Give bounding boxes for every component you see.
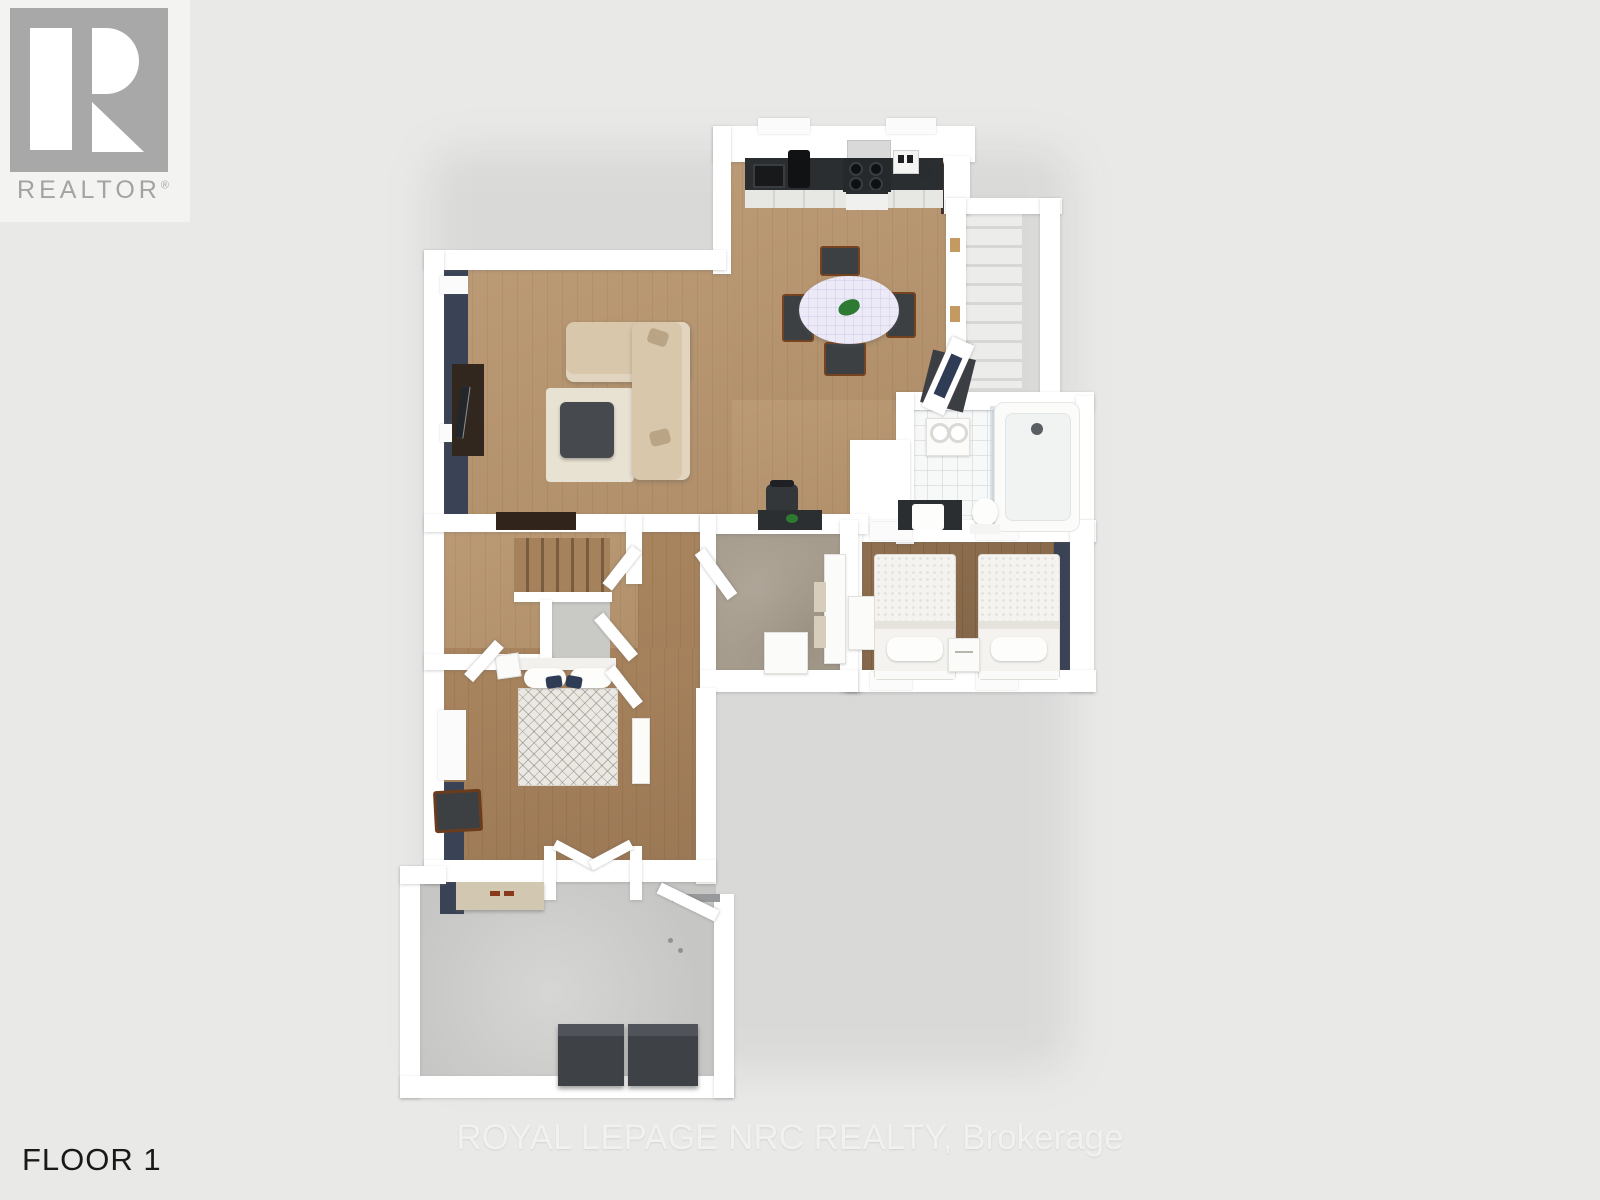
- toilet: [972, 498, 998, 526]
- master-right-wall: [696, 688, 716, 884]
- coffee-machine: [788, 150, 810, 188]
- bedroom-chair: [433, 789, 483, 833]
- master-bottom-wall: [424, 860, 716, 882]
- door-hinge-dot: [668, 938, 673, 943]
- tv-console: [452, 364, 484, 456]
- kettle: [919, 162, 934, 179]
- laundry-cabinet: [824, 554, 846, 664]
- washer: [764, 632, 808, 674]
- accent-pillow-left: [545, 675, 563, 689]
- garage-dresser: [456, 882, 544, 910]
- small-appliance: [893, 150, 919, 174]
- toilet-tank: [970, 524, 1000, 534]
- twin-bed-left: [874, 554, 956, 680]
- entry-shelf-2: [950, 306, 960, 322]
- laundry-shelf-2: [814, 616, 826, 648]
- towel-shelf: [926, 418, 970, 456]
- kitchen-cabinets: [745, 190, 943, 208]
- realtor-logo-card: REALTOR®: [0, 0, 190, 222]
- realtor-logo-text: REALTOR®: [2, 176, 184, 205]
- dining-chair-bottom: [824, 342, 866, 376]
- registered-symbol: ®: [161, 180, 169, 192]
- laundry-shelf: [814, 582, 826, 612]
- storage-box-right: [628, 1024, 698, 1086]
- master-nightstand: [494, 652, 521, 679]
- laundry-left-wall: [700, 514, 716, 692]
- floor-label: FLOOR 1: [22, 1142, 162, 1178]
- bathtub: [994, 402, 1080, 532]
- left-exterior-wall: [424, 250, 444, 884]
- closet-right-wall: [630, 846, 642, 900]
- garage-top-stub-wall: [400, 866, 446, 884]
- living-top-wall: [424, 250, 726, 270]
- storage-box-left: [558, 1024, 624, 1086]
- oven-front: [846, 190, 888, 210]
- entry-shelf: [950, 238, 960, 252]
- vanity-sink: [912, 504, 944, 530]
- stair-stringer-wall: [514, 592, 612, 602]
- accent-pillow-right: [565, 675, 583, 690]
- twin-bed-right: [978, 554, 1060, 680]
- desk-plant: [786, 514, 798, 523]
- master-bed-comforter: [518, 688, 618, 786]
- entry-right-wall: [1040, 198, 1060, 404]
- garage-left-wall: [400, 866, 420, 1098]
- garage-right-wall: [714, 894, 734, 1098]
- closet-left-wall: [544, 846, 556, 900]
- master-wardrobe-panel: [632, 718, 650, 784]
- stove-cooktop: [843, 158, 891, 192]
- nightstand: [948, 638, 980, 672]
- master-window-sill: [438, 710, 466, 780]
- kitchen-window-bay-2: [886, 118, 936, 134]
- kitchen-sink: [753, 164, 785, 188]
- living-window-sill: [440, 276, 468, 294]
- twin-right-wall: [1070, 520, 1094, 692]
- sideboard: [496, 512, 576, 530]
- kitchen-window-bay: [758, 118, 810, 134]
- desk-chair-back: [770, 480, 794, 487]
- ottoman: [560, 402, 614, 458]
- realtor-logo-icon: [10, 8, 168, 172]
- dining-chair-top: [820, 246, 860, 276]
- door-hinge-dot-2: [678, 948, 683, 953]
- brokerage-watermark: ROYAL LEPAGE NRC REALTY, Brokerage: [430, 1118, 1150, 1158]
- staircase-down: [514, 538, 610, 596]
- stairwell-stub-wall: [540, 600, 552, 658]
